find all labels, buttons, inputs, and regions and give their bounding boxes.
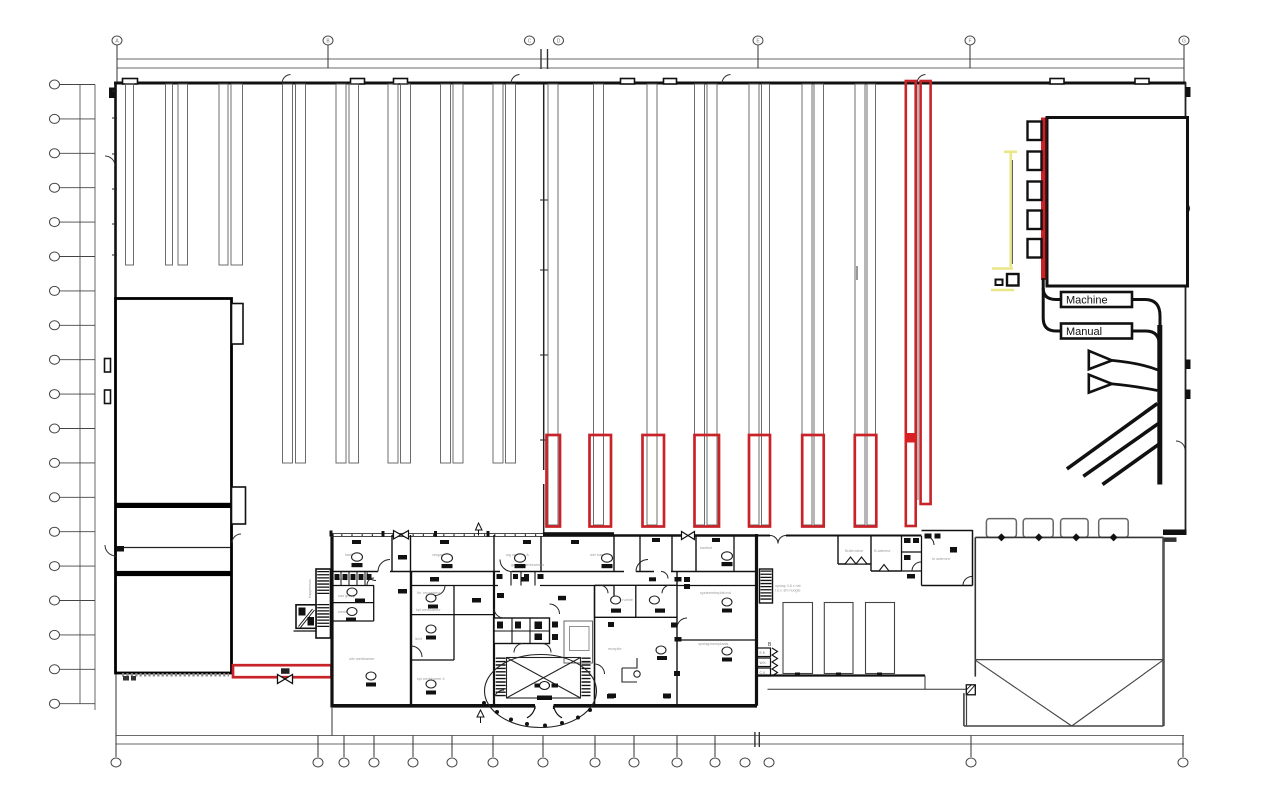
svg-text:G: G	[1182, 39, 1186, 45]
svg-text:C: C	[528, 39, 532, 45]
svg-text:uitv werkkamer: uitv werkkamer	[349, 657, 375, 661]
svg-text:D: D	[557, 39, 561, 45]
svg-text:W.K.: W.K.	[760, 661, 767, 665]
svg-text:licht: licht	[415, 637, 423, 641]
svg-text:E.K.: E.K.	[760, 651, 766, 655]
svg-text:F: F	[968, 39, 971, 45]
svg-text:B.adereur: B.adereur	[874, 549, 891, 553]
svg-text:kantine: kantine	[700, 546, 712, 550]
svg-text:In ademen: In ademen	[932, 557, 950, 561]
svg-text:opstap 3,8 x mtr: opstap 3,8 x mtr	[775, 584, 802, 588]
svg-text:kpl werkkamer: kpl werkkamer	[416, 608, 441, 612]
svg-text:systeembeplafond: systeembeplafond	[700, 591, 731, 595]
svg-text:t.b.v. 8m hoogte: t.b.v. 8m hoogte	[775, 589, 801, 593]
svg-text:Machine: Machine	[1066, 295, 1108, 307]
svg-text:Buitendeur: Buitendeur	[845, 549, 864, 553]
svg-text:opslag/werkplaats: opslag/werkplaats	[698, 642, 728, 646]
svg-text:Manual: Manual	[1066, 326, 1102, 338]
svg-text:trappenhuis: trappenhuis	[308, 579, 312, 598]
svg-text:receptie: receptie	[608, 647, 622, 651]
